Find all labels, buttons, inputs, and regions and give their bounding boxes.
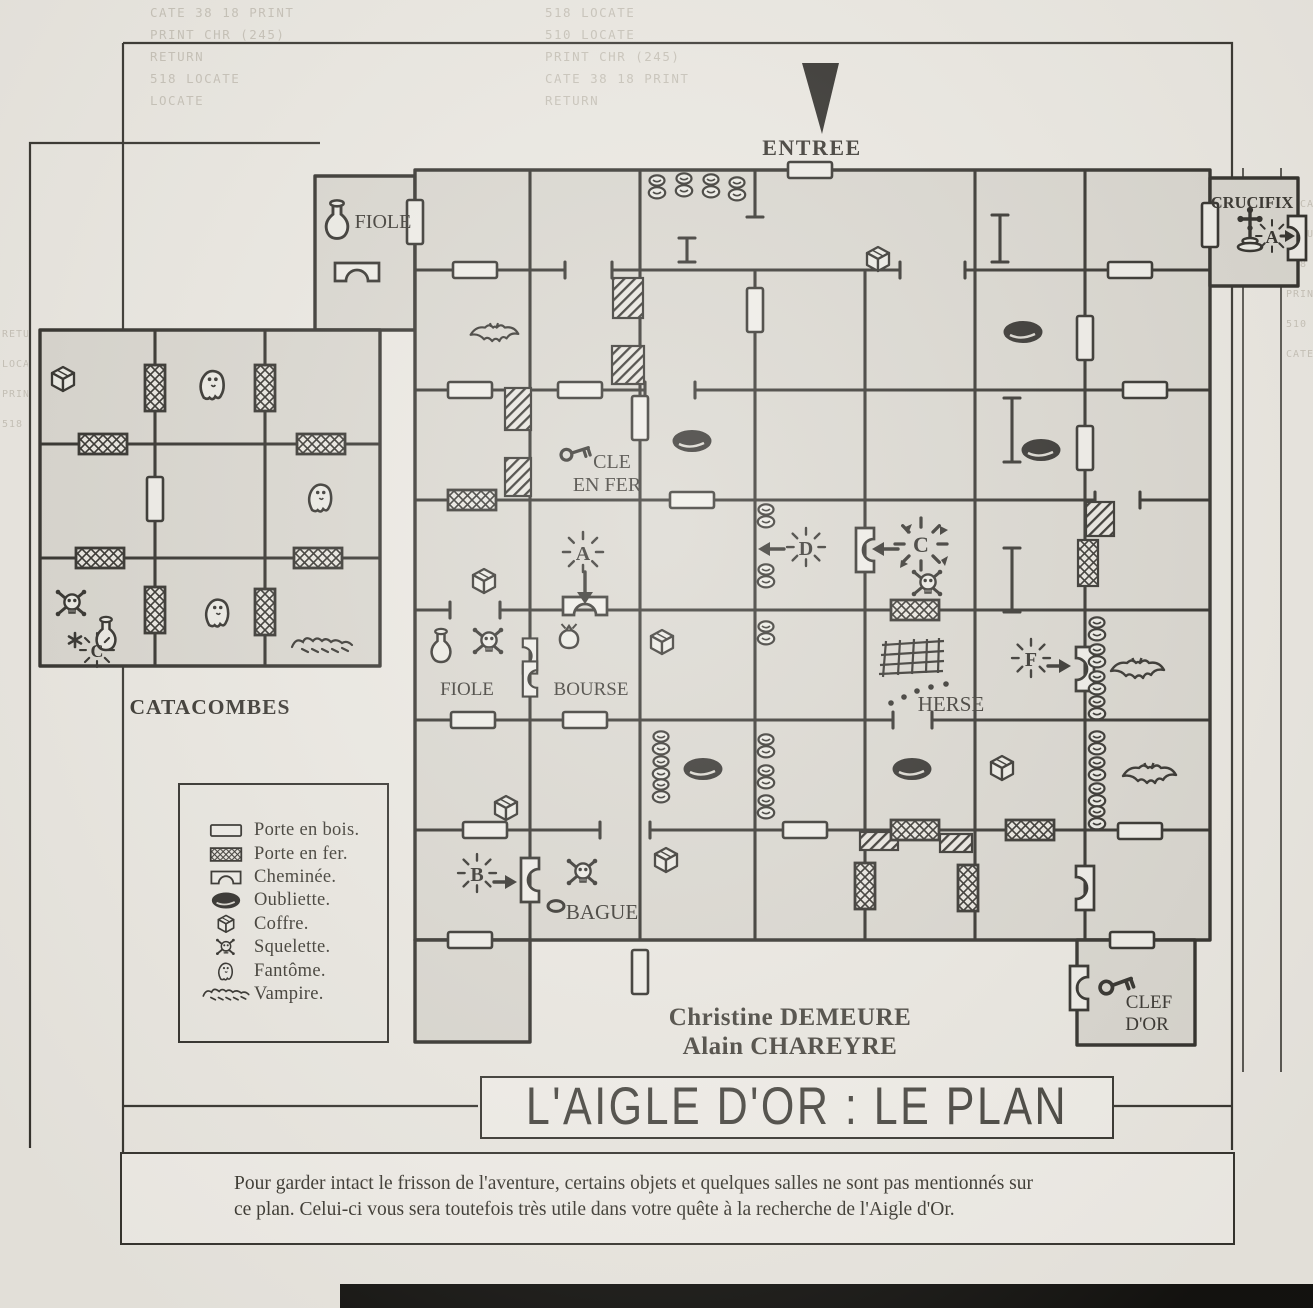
wood-door-icon	[147, 477, 163, 521]
ghost-icon	[201, 371, 224, 399]
magazine-page: CATE 38 18 PRINT PRINT CHR (245) RETURN …	[0, 0, 1313, 1308]
wood-door-icon	[747, 288, 763, 332]
legend-item: Vampire.	[180, 983, 387, 1006]
iron-door-icon	[855, 863, 875, 909]
map-label-herse: HERSE	[918, 692, 985, 716]
chest-icon	[198, 913, 254, 936]
ghost-icon	[198, 960, 254, 983]
wood-door-icon	[1077, 316, 1093, 360]
map-label-entree: ENTREE	[762, 135, 861, 160]
legend-item-label: Fantôme.	[254, 961, 326, 982]
legend-item-label: Vampire.	[254, 984, 324, 1005]
iron-door-icon	[448, 490, 496, 510]
credits: Christine DEMEURE Alain CHAREYRE	[545, 1003, 1035, 1061]
stairs-hatch	[505, 388, 531, 430]
wood-door-icon	[1110, 932, 1154, 948]
teleport-marker-f: F	[1025, 649, 1037, 671]
skeleton-icon	[198, 936, 254, 959]
wood-door-icon	[448, 382, 492, 398]
entrance-arrow-icon	[802, 63, 839, 134]
wood-door-icon	[670, 492, 714, 508]
legend-item: Oubliette.	[180, 889, 387, 912]
stairs-hatch	[940, 834, 972, 852]
iron-door-icon	[255, 589, 275, 635]
stairs-hatch	[505, 458, 531, 496]
map-label-clef-dor: D'OR	[1125, 1014, 1169, 1035]
iron-door-icon	[891, 600, 939, 620]
ghost-icon	[309, 485, 331, 512]
wood-door-icon	[198, 819, 254, 842]
legend-item-label: Squelette.	[254, 937, 330, 958]
chest-icon	[867, 247, 889, 271]
oubliette-icon	[893, 759, 931, 780]
fireplace-icon	[198, 866, 254, 889]
catacombes-map: C CATACOMBES	[40, 330, 380, 719]
iron-door-icon	[255, 365, 275, 411]
credit-author-1: Christine DEMEURE	[545, 1003, 1035, 1032]
iron-door-icon	[958, 865, 978, 911]
legend-item-label: Porte en bois.	[254, 820, 359, 841]
map-label-bourse: BOURSE	[554, 679, 629, 700]
iron-door-icon	[198, 843, 254, 866]
note-line-1: Pour garder intact le frisson de l'avent…	[234, 1171, 1178, 1197]
chest-icon	[651, 630, 673, 654]
legend: Porte en bois. Porte en fer. Cheminée. O…	[178, 783, 389, 1043]
stairs-hatch	[613, 278, 643, 318]
teleport-marker-c: C	[913, 532, 929, 557]
page-title: L'AIGLE D'OR : LE PLAN	[526, 1078, 1068, 1138]
oubliette-icon	[1004, 322, 1042, 343]
teleport-marker-b: B	[470, 864, 483, 886]
chest-icon	[473, 569, 495, 593]
teleport-marker-d: D	[799, 538, 813, 560]
iron-door-icon	[79, 434, 127, 454]
vampire-icon	[198, 983, 254, 1006]
catacombes-label: CATACOMBES	[130, 695, 291, 719]
iron-door-icon	[145, 365, 165, 411]
legend-item: Porte en fer.	[180, 842, 387, 865]
wood-door-icon	[1108, 262, 1152, 278]
chest-icon	[655, 848, 677, 872]
wood-door-icon	[563, 712, 607, 728]
credit-author-2: Alain CHAREYRE	[545, 1032, 1035, 1061]
chest-icon	[52, 367, 74, 391]
teleport-marker-c-catacombes: C	[91, 641, 104, 661]
note-box: Pour garder intact le frisson de l'avent…	[120, 1152, 1235, 1245]
legend-item-label: Porte en fer.	[254, 844, 348, 865]
oubliette-icon	[1022, 440, 1060, 461]
legend-item: Squelette.	[180, 936, 387, 959]
stairs-hatch	[612, 346, 644, 384]
teleport-marker-a: A	[576, 543, 591, 565]
bottom-black-bar	[340, 1284, 1313, 1308]
wood-door-icon	[453, 262, 497, 278]
stairs-hatch	[1086, 502, 1114, 536]
wood-door-icon	[1077, 426, 1093, 470]
oubliette-icon	[198, 889, 254, 912]
map-area-fiole-annex	[315, 176, 415, 330]
wood-door-icon	[632, 396, 648, 440]
oubliette-icon	[673, 431, 711, 452]
note-line-2: ce plan. Celui-ci vous sera toutefois tr…	[234, 1197, 1178, 1223]
legend-item-label: Cheminée.	[254, 867, 336, 888]
wood-door-icon	[1118, 823, 1162, 839]
wood-door-icon	[1123, 382, 1167, 398]
wood-door-icon	[788, 162, 832, 178]
wood-door-icon	[451, 712, 495, 728]
iron-door-icon	[297, 434, 345, 454]
map-label-fiole-top: FIOLE	[355, 211, 412, 233]
wood-door-icon	[632, 950, 648, 994]
map-label-cle-en-fer: CLE	[593, 451, 631, 473]
legend-item: Porte en bois.	[180, 819, 387, 842]
ghost-icon	[206, 600, 228, 627]
teleport-marker-a-crucifix: A	[1266, 227, 1279, 247]
map-label-clef-dor: CLEF	[1126, 992, 1172, 1013]
iron-door-icon	[891, 820, 939, 840]
legend-item-label: Oubliette.	[254, 890, 330, 911]
map-label-bague: BAGUE	[566, 900, 638, 924]
legend-item-label: Coffre.	[254, 914, 309, 935]
oubliette-icon	[684, 759, 722, 780]
wood-door-icon	[783, 822, 827, 838]
legend-item: Cheminée.	[180, 866, 387, 889]
iron-door-icon	[1006, 820, 1054, 840]
chest-icon	[495, 796, 517, 820]
map-label-crucifix: CRUCIFIX	[1211, 193, 1294, 212]
wood-door-icon	[558, 382, 602, 398]
map-label-cle-en-fer: EN FER	[573, 474, 642, 496]
stairs-hatch	[1078, 540, 1098, 586]
map-label-fiole: FIOLE	[440, 679, 494, 700]
legend-item: Coffre.	[180, 913, 387, 936]
title-box: L'AIGLE D'OR : LE PLAN	[480, 1076, 1114, 1139]
iron-door-icon	[294, 548, 342, 568]
main-map: A B C D F	[315, 63, 1306, 1045]
legend-item: Fantôme.	[180, 959, 387, 982]
map-area-southwest-room	[415, 940, 530, 1042]
iron-door-icon	[145, 587, 165, 633]
wood-door-icon	[463, 822, 507, 838]
chest-icon	[991, 756, 1013, 780]
iron-door-icon	[76, 548, 124, 568]
wood-door-icon	[448, 932, 492, 948]
